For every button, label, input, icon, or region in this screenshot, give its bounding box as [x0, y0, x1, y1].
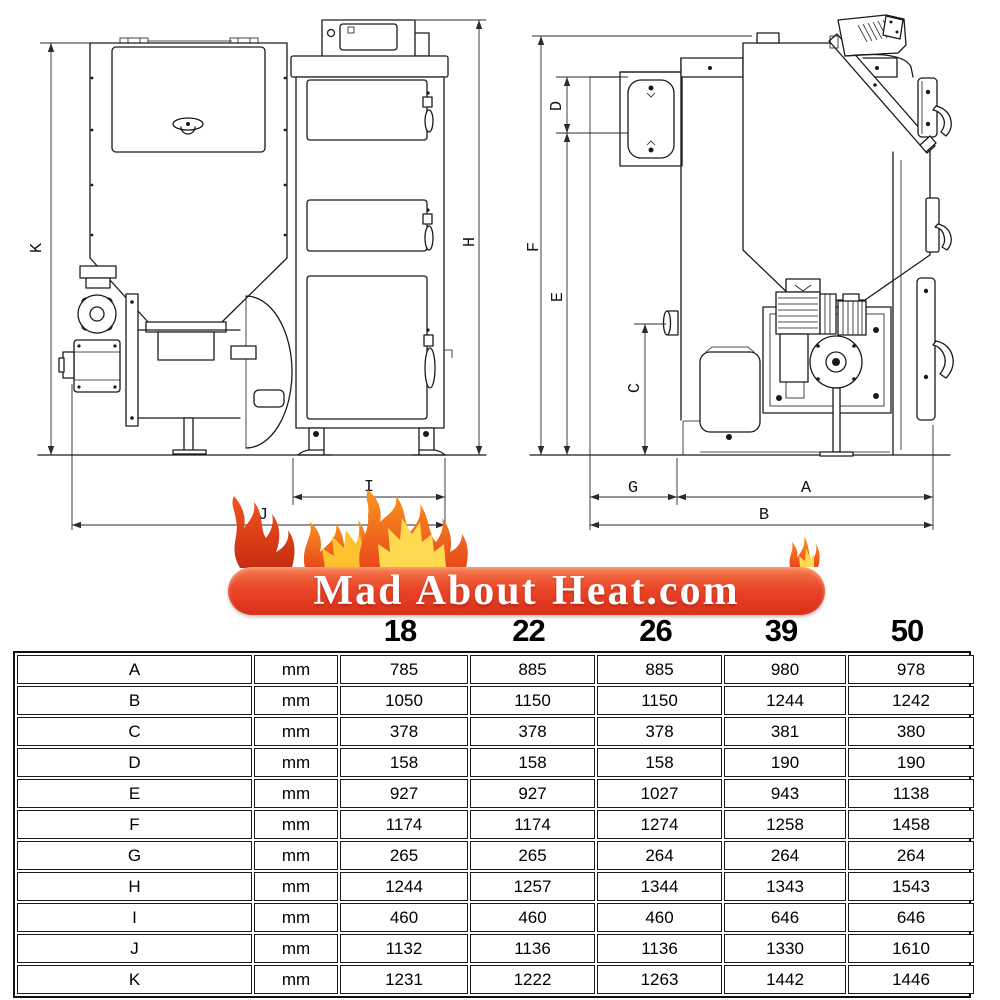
unit-cell: mm — [254, 779, 338, 808]
value-cell: 460 — [597, 903, 722, 932]
table-row: F mm 1174 1174 1274 1258 1458 — [17, 810, 974, 839]
lower-door-side — [917, 278, 935, 420]
value-cell: 1446 — [848, 965, 974, 994]
value-cell: 646 — [848, 903, 974, 932]
value-cell: 1174 — [340, 810, 468, 839]
dim-label-k: K — [28, 242, 47, 253]
value-cell: 927 — [340, 779, 468, 808]
value-cell: 381 — [724, 717, 846, 746]
unit-cell: mm — [254, 872, 338, 901]
value-cell: 1458 — [848, 810, 974, 839]
table-row: C mm 378 378 378 381 380 — [17, 717, 974, 746]
dimension-letter-cell: D — [17, 748, 252, 777]
value-cell: 1138 — [848, 779, 974, 808]
value-cell: 1274 — [597, 810, 722, 839]
value-cell: 460 — [340, 903, 468, 932]
dimension-letter-cell: C — [17, 717, 252, 746]
value-cell: 1543 — [848, 872, 974, 901]
value-cell: 1244 — [724, 686, 846, 715]
value-cell: 1242 — [848, 686, 974, 715]
value-cell: 264 — [597, 841, 722, 870]
value-cell: 378 — [597, 717, 722, 746]
dimension-letter-cell: E — [17, 779, 252, 808]
unit-cell: mm — [254, 841, 338, 870]
value-cell: 1610 — [848, 934, 974, 963]
flue-outlet-icon — [628, 80, 674, 158]
value-cell: 1344 — [597, 872, 722, 901]
unit-cell: mm — [254, 686, 338, 715]
logo-text: Mad About Heat.com — [313, 567, 739, 615]
unit-cell: mm — [254, 934, 338, 963]
table-row: G mm 265 265 264 264 264 — [17, 841, 974, 870]
unit-cell: mm — [254, 717, 338, 746]
value-cell: 1150 — [470, 686, 595, 715]
dimensions-table-body: A mm 785 885 885 980 978 B mm 1050 1150 … — [17, 655, 974, 994]
upper-door-handle-icon — [425, 110, 433, 132]
dimension-letter-cell: J — [17, 934, 252, 963]
value-cell: 1150 — [597, 686, 722, 715]
dim-label-f: F — [525, 242, 544, 252]
unit-cell: mm — [254, 655, 338, 684]
value-cell: 1050 — [340, 686, 468, 715]
value-cell: 1263 — [597, 965, 722, 994]
front-view: K H I J — [28, 20, 486, 530]
boiler-technical-drawing: K H I J — [0, 0, 1000, 545]
value-cell: 1136 — [470, 934, 595, 963]
value-cell: 978 — [848, 655, 974, 684]
dim-label-d: D — [548, 101, 567, 111]
table-row: D mm 158 158 158 190 190 — [17, 748, 974, 777]
spec-sheet-page: { "logo": { "text": "Mad About Heat.com"… — [0, 0, 1000, 1000]
dimension-letter-cell: B — [17, 686, 252, 715]
hopper-side — [743, 43, 930, 300]
value-cell: 380 — [848, 717, 974, 746]
value-cell: 265 — [470, 841, 595, 870]
dimensions-table-frame: A mm 785 885 885 980 978 B mm 1050 1150 … — [13, 651, 971, 998]
value-cell: 1136 — [597, 934, 722, 963]
value-cell: 460 — [470, 903, 595, 932]
value-cell: 1442 — [724, 965, 846, 994]
unit-cell: mm — [254, 748, 338, 777]
dimension-letter-cell: A — [17, 655, 252, 684]
table-row: E mm 927 927 1027 943 1138 — [17, 779, 974, 808]
dimensions-table: A mm 785 885 885 980 978 B mm 1050 1150 … — [15, 653, 976, 996]
value-cell: 1257 — [470, 872, 595, 901]
value-cell: 378 — [470, 717, 595, 746]
upper-door-front — [307, 80, 427, 140]
value-cell: 943 — [724, 779, 846, 808]
table-row: A mm 785 885 885 980 978 — [17, 655, 974, 684]
value-cell: 927 — [470, 779, 595, 808]
middle-door-front — [307, 200, 427, 251]
dimension-letter-cell: K — [17, 965, 252, 994]
value-cell: 1132 — [340, 934, 468, 963]
table-row: K mm 1231 1222 1263 1442 1446 — [17, 965, 974, 994]
table-row: J mm 1132 1136 1136 1330 1610 — [17, 934, 974, 963]
value-cell: 885 — [597, 655, 722, 684]
dimension-letter-cell: F — [17, 810, 252, 839]
value-cell: 190 — [848, 748, 974, 777]
unit-cell: mm — [254, 965, 338, 994]
unit-cell: mm — [254, 810, 338, 839]
value-cell: 885 — [470, 655, 595, 684]
dimension-spec-section: 18 22 26 39 50 A mm 785 885 885 980 978 … — [13, 612, 971, 998]
dimension-letter-cell: G — [17, 841, 252, 870]
value-cell: 980 — [724, 655, 846, 684]
value-cell: 785 — [340, 655, 468, 684]
value-cell: 190 — [724, 748, 846, 777]
dimension-letter-cell: H — [17, 872, 252, 901]
value-cell: 1258 — [724, 810, 846, 839]
value-cell: 158 — [340, 748, 468, 777]
dim-label-h: H — [461, 237, 480, 247]
dimension-letter-cell: I — [17, 903, 252, 932]
model-header-50: 50 — [843, 612, 971, 650]
dim-label-c: C — [626, 383, 645, 393]
lower-door-handle-icon — [425, 348, 435, 388]
value-cell: 264 — [724, 841, 846, 870]
value-cell: 265 — [340, 841, 468, 870]
table-row: I mm 460 460 460 646 646 — [17, 903, 974, 932]
value-cell: 378 — [340, 717, 468, 746]
value-cell: 1222 — [470, 965, 595, 994]
value-cell: 1330 — [724, 934, 846, 963]
fan-box-side — [700, 352, 760, 432]
boiler-front — [291, 20, 452, 455]
value-cell: 1174 — [470, 810, 595, 839]
flame-left-red — [232, 496, 294, 568]
table-row: B mm 1050 1150 1150 1244 1242 — [17, 686, 974, 715]
value-cell: 1027 — [597, 779, 722, 808]
middle-door-handle-icon — [425, 226, 433, 250]
table-row: H mm 1244 1257 1344 1343 1543 — [17, 872, 974, 901]
lower-handle-icon — [933, 341, 953, 378]
water-port-icon — [664, 311, 671, 335]
dim-label-e: E — [549, 292, 568, 302]
logo-banner: Mad About Heat.com — [228, 567, 825, 615]
unit-cell: mm — [254, 903, 338, 932]
value-cell: 264 — [848, 841, 974, 870]
value-cell: 1231 — [340, 965, 468, 994]
burner-motor-assembly — [763, 279, 891, 456]
value-cell: 1244 — [340, 872, 468, 901]
value-cell: 1343 — [724, 872, 846, 901]
value-cell: 158 — [597, 748, 722, 777]
lower-door-front — [307, 276, 427, 419]
value-cell: 646 — [724, 903, 846, 932]
value-cell: 158 — [470, 748, 595, 777]
